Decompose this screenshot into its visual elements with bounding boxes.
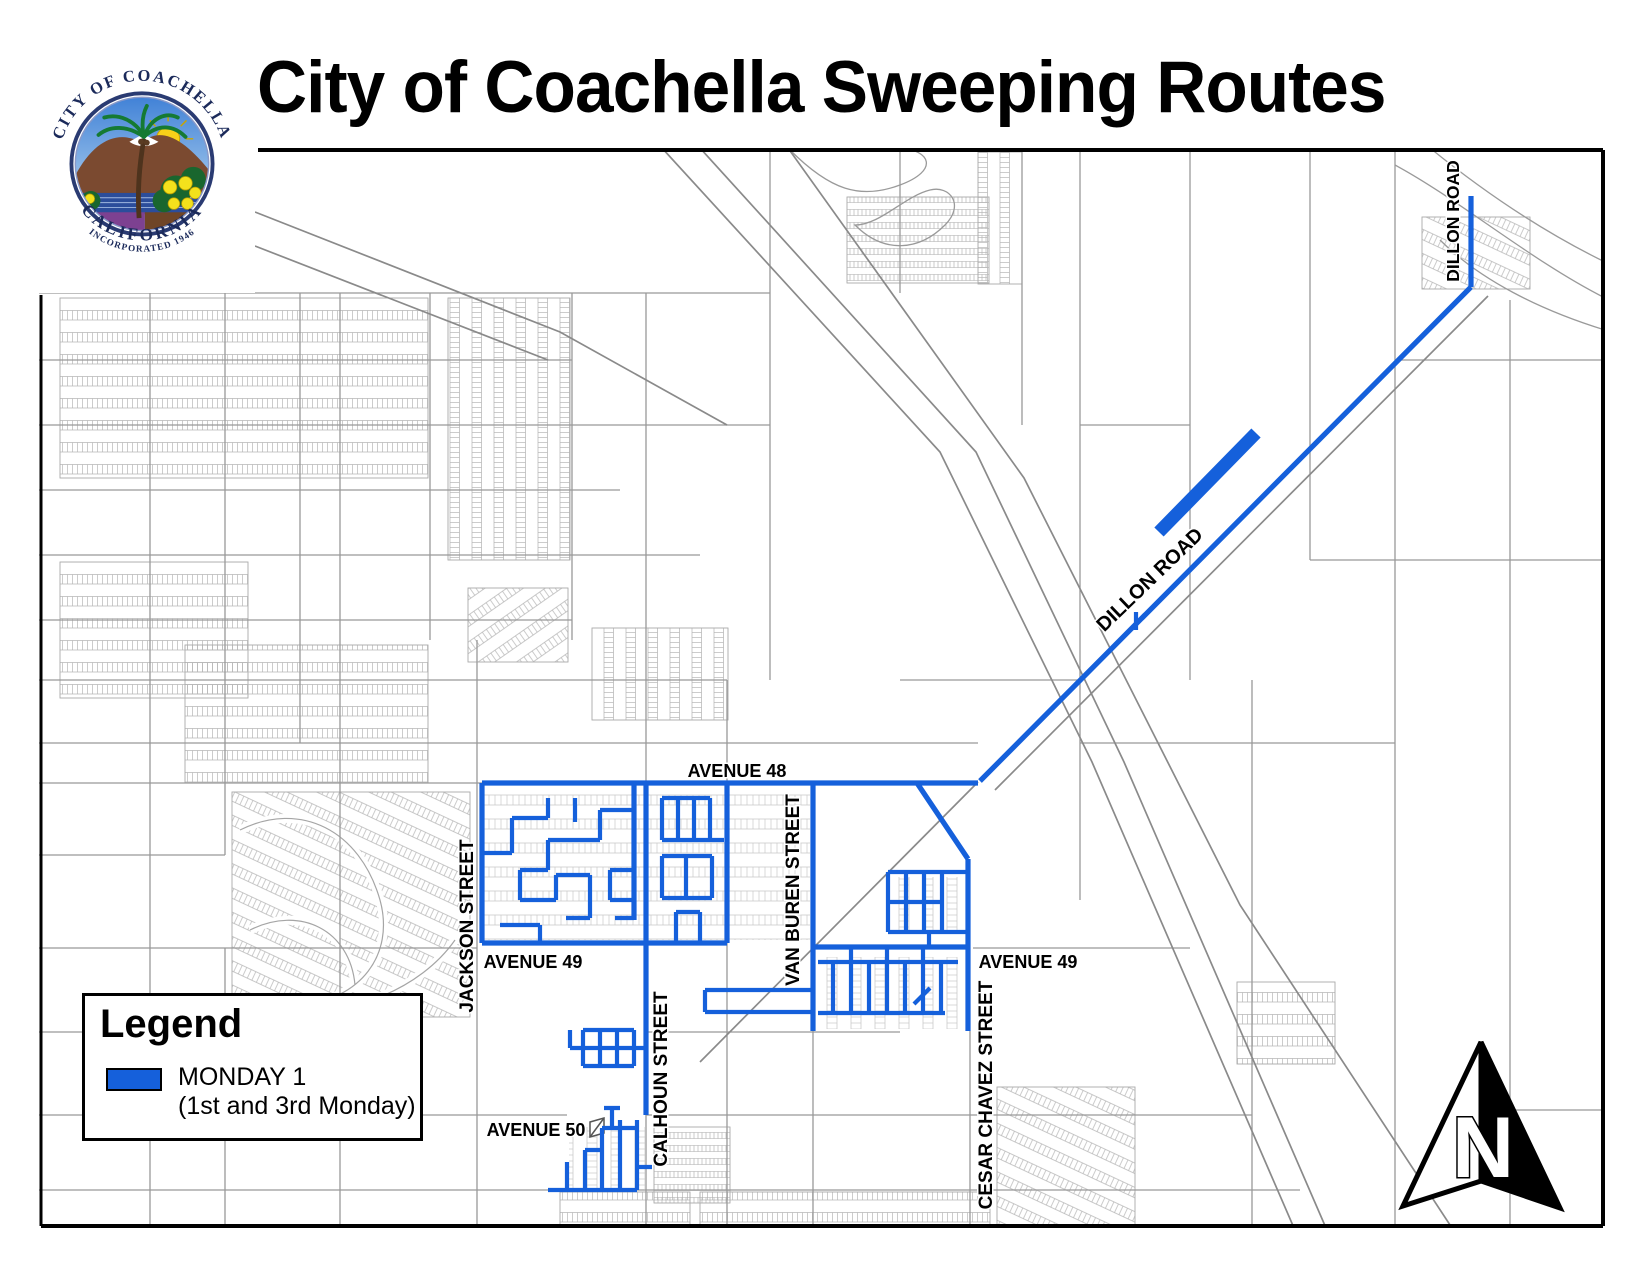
- north-arrow: N: [1403, 1042, 1560, 1208]
- street-label-avenue-50: AVENUE 50: [487, 1120, 586, 1140]
- street-label-cesar-chavez: CESAR CHAVEZ STREET: [976, 980, 997, 1209]
- legend-item-label: MONDAY 1: [178, 1063, 416, 1092]
- freeway-layer: [255, 148, 1488, 1228]
- street-label-avenue-49-west: AVENUE 49: [484, 952, 583, 972]
- curved-subdivision: [232, 792, 470, 1017]
- city-seal: CITY OF COACHELLA CALIFORNIA INCORPORATE…: [50, 46, 234, 278]
- route-color-swatch: [106, 1068, 162, 1091]
- street-label-calhoun: CALHOUN STREET: [651, 991, 672, 1167]
- legend-item-sublabel: (1st and 3rd Monday): [178, 1092, 416, 1121]
- legend-title: Legend: [100, 1002, 420, 1047]
- north-arrow-letter: N: [1452, 1100, 1514, 1196]
- street-label-jackson: JACKSON STREET: [457, 839, 478, 1013]
- street-label-van-buren: VAN BUREN STREET: [783, 794, 804, 986]
- legend-box: Legend MONDAY 1 (1st and 3rd Monday): [82, 993, 423, 1141]
- street-label-avenue-49-east: AVENUE 49: [979, 952, 1078, 972]
- legend-item-monday1: MONDAY 1 (1st and 3rd Monday): [106, 1063, 420, 1121]
- street-label-avenue-48: AVENUE 48: [688, 761, 787, 781]
- page: AVENUE 48 AVENUE 49 AVENUE 49 AVENUE 50 …: [0, 0, 1650, 1275]
- street-label-dillon-road-top: DILLON ROAD: [1443, 160, 1463, 282]
